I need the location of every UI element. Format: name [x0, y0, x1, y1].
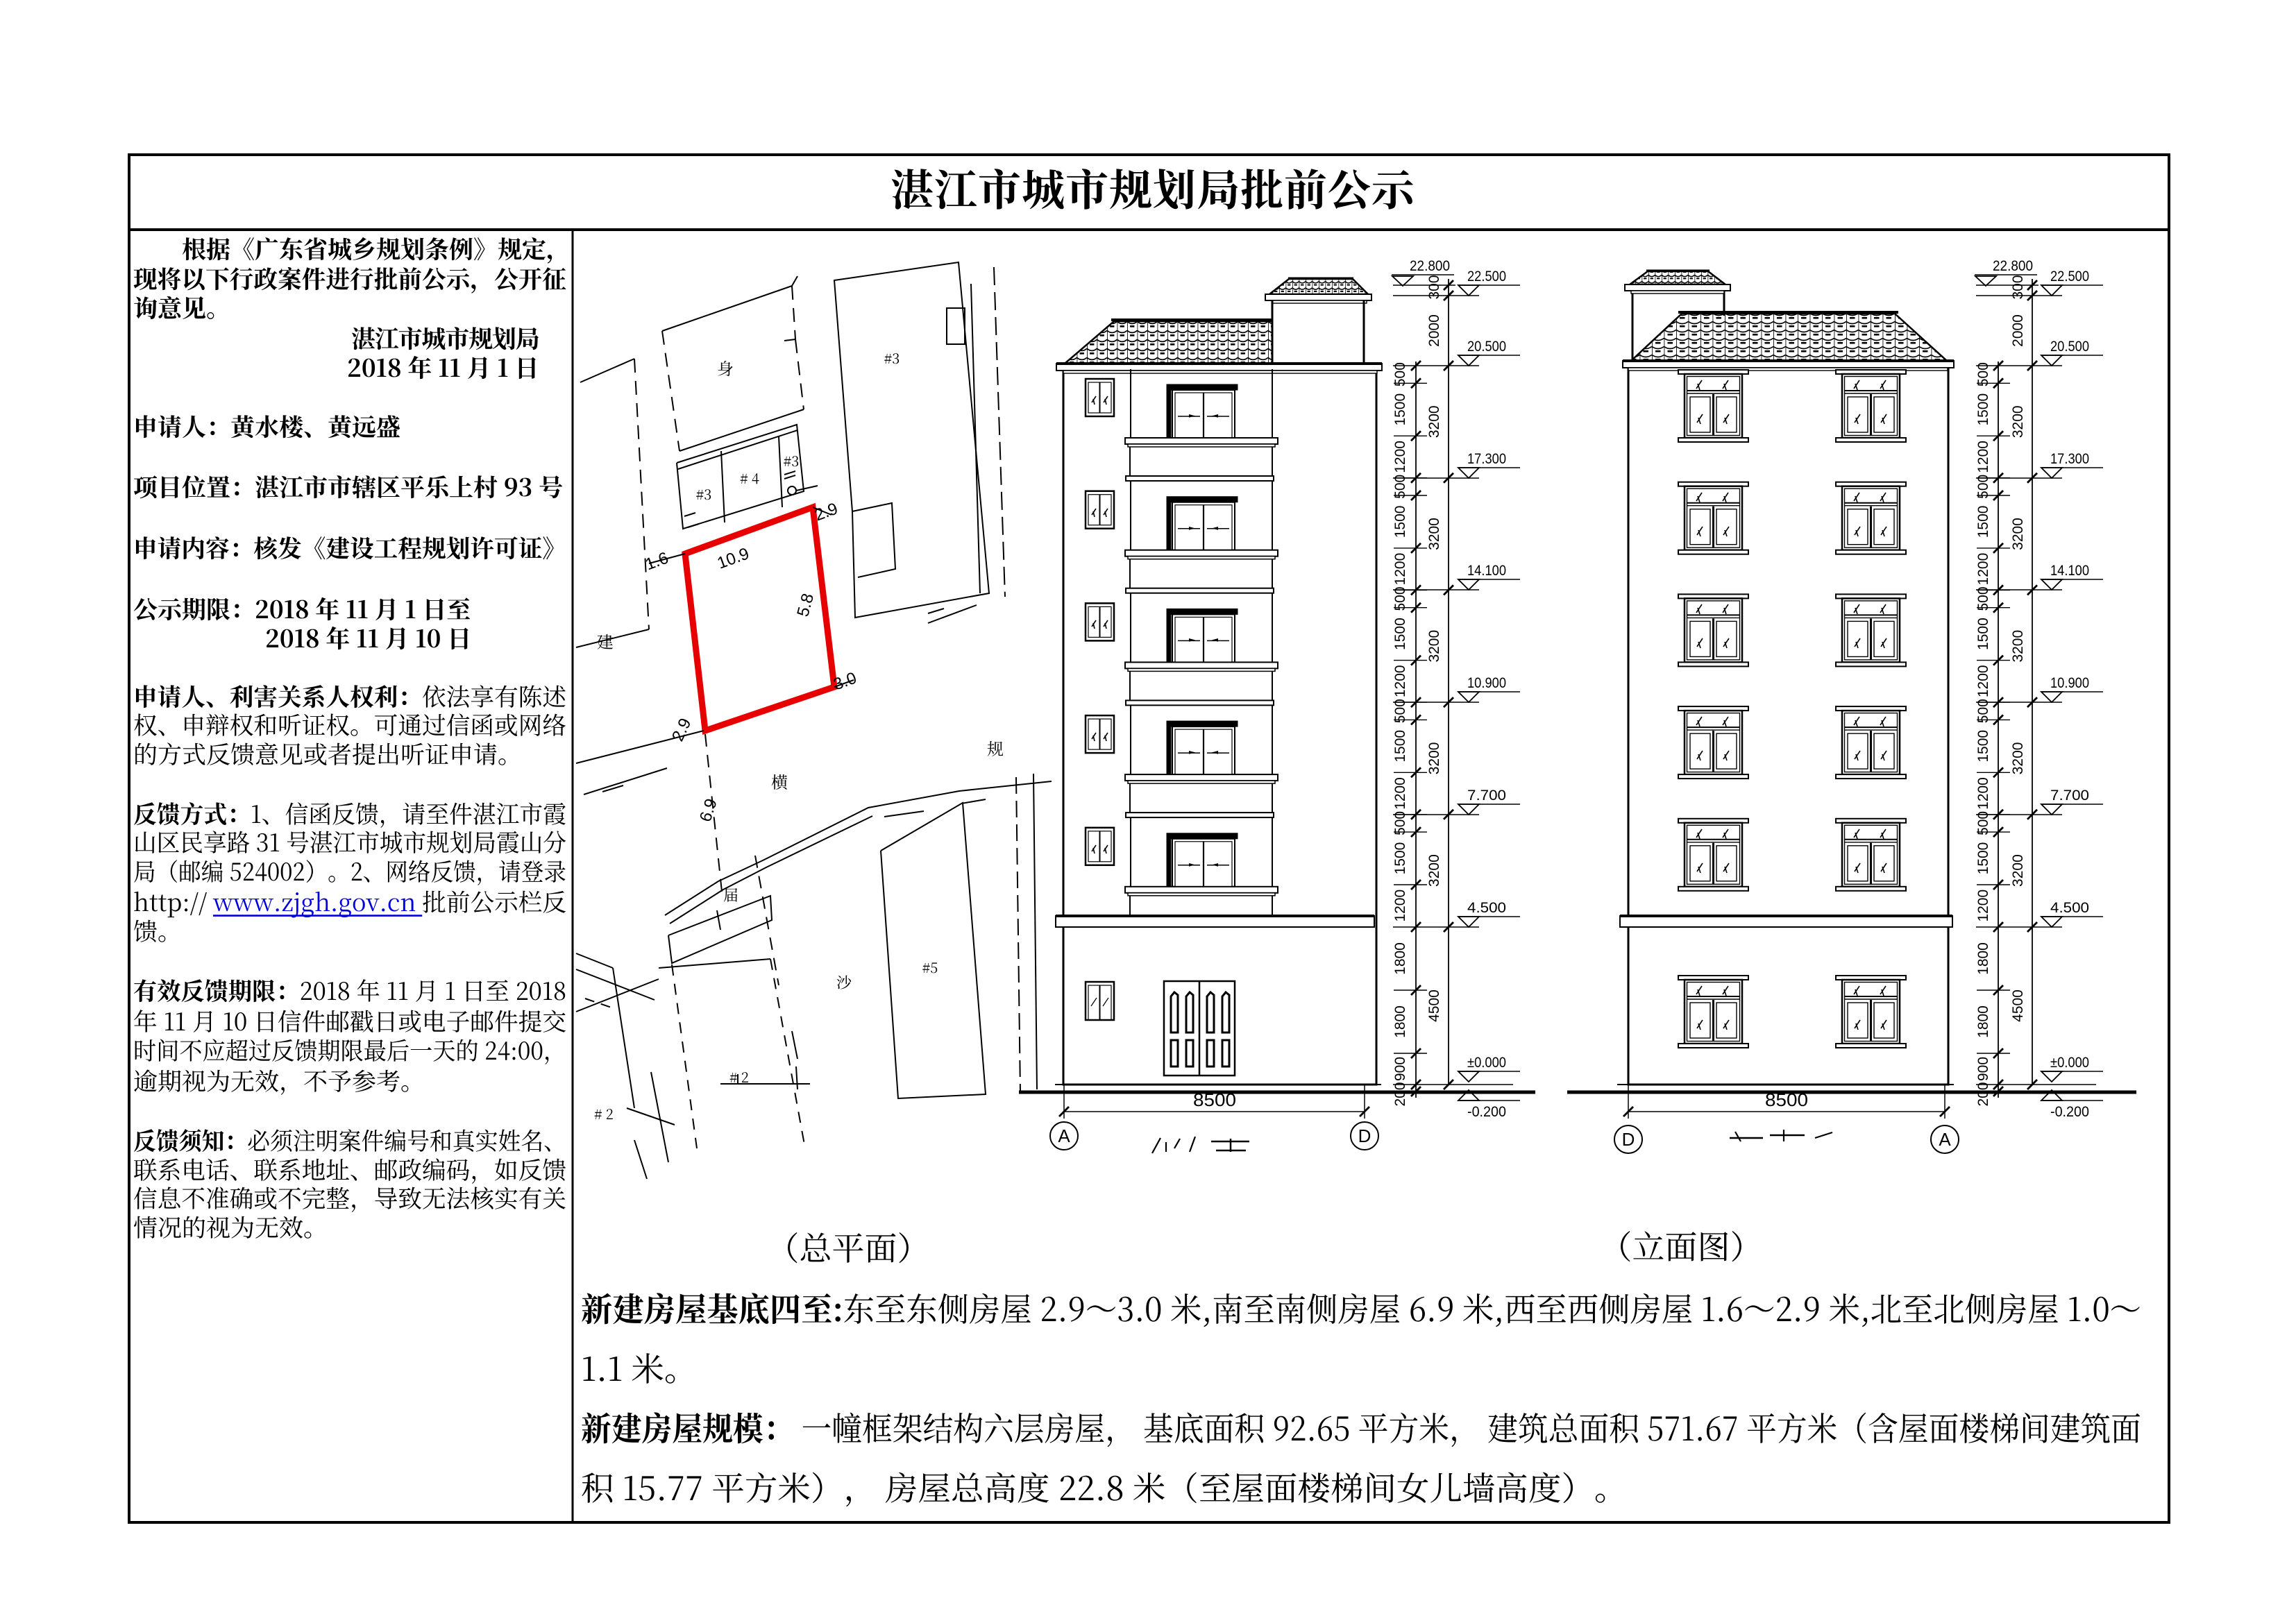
svg-text:3200: 3200 [2010, 854, 2026, 887]
svg-text:1800: 1800 [1392, 1005, 1408, 1038]
svg-text:7.700: 7.700 [2050, 788, 2089, 804]
svg-text:3200: 3200 [2010, 405, 2026, 438]
svg-text:500: 500 [1392, 362, 1408, 386]
svg-text:1200: 1200 [1392, 777, 1408, 810]
svg-text:500: 500 [1975, 699, 1991, 723]
svg-text:1200: 1200 [1392, 665, 1408, 697]
svg-text:20.500: 20.500 [2050, 339, 2089, 355]
svg-text:200: 200 [1392, 1082, 1408, 1106]
svg-text:-0.200: -0.200 [1467, 1104, 1506, 1120]
svg-text:8500: 8500 [1765, 1089, 1808, 1110]
svg-text:7.700: 7.700 [1467, 788, 1506, 804]
svg-text:500: 500 [1392, 699, 1408, 723]
svg-text:17.300: 17.300 [2050, 451, 2089, 467]
svg-text:1500: 1500 [1975, 506, 1991, 538]
svg-text:1200: 1200 [1975, 890, 1991, 922]
svg-text:500: 500 [1975, 362, 1991, 386]
svg-text:1500: 1500 [1392, 618, 1408, 650]
svg-text:4500: 4500 [1426, 989, 1442, 1022]
svg-text:4500: 4500 [2010, 989, 2026, 1022]
svg-text:300: 300 [2010, 275, 2026, 299]
svg-text:A: A [1058, 1125, 1070, 1146]
svg-text:1800: 1800 [1392, 942, 1408, 975]
svg-text:200: 200 [1975, 1082, 1991, 1106]
svg-text:1500: 1500 [1975, 730, 1991, 763]
svg-text:1500: 1500 [1392, 393, 1408, 426]
svg-text:1200: 1200 [1392, 441, 1408, 473]
svg-text:A: A [1939, 1129, 1951, 1150]
svg-text:22.500: 22.500 [2050, 269, 2089, 284]
svg-text:14.100: 14.100 [2050, 563, 2089, 579]
svg-text:3200: 3200 [1426, 854, 1442, 887]
svg-text:D: D [1358, 1125, 1371, 1146]
svg-text:500: 500 [1392, 475, 1408, 499]
svg-text:2000: 2000 [2010, 314, 2026, 347]
svg-text:500: 500 [1392, 811, 1408, 835]
svg-text:500: 500 [1392, 586, 1408, 611]
svg-text:1200: 1200 [1392, 890, 1408, 922]
svg-text:500: 500 [1975, 586, 1991, 611]
svg-text:20.500: 20.500 [1467, 339, 1506, 355]
svg-text:±0.000: ±0.000 [2050, 1055, 2089, 1071]
svg-text:1500: 1500 [1975, 842, 1991, 875]
svg-text:3200: 3200 [2010, 630, 2026, 663]
svg-text:2000: 2000 [1426, 314, 1442, 347]
svg-text:10.900: 10.900 [2050, 675, 2089, 691]
svg-text:14.100: 14.100 [1467, 563, 1506, 579]
svg-text:17.300: 17.300 [1467, 451, 1506, 467]
svg-text:22.800: 22.800 [1410, 258, 1450, 274]
svg-text:1200: 1200 [1975, 441, 1991, 473]
svg-text:1800: 1800 [1975, 942, 1991, 975]
svg-text:900: 900 [1975, 1057, 1991, 1081]
svg-text:±0.000: ±0.000 [1467, 1055, 1506, 1071]
svg-text:3200: 3200 [1426, 742, 1442, 775]
svg-text:3200: 3200 [1426, 630, 1442, 663]
svg-text:-0.200: -0.200 [2050, 1104, 2089, 1120]
svg-text:4.500: 4.500 [2050, 900, 2089, 916]
svg-text:500: 500 [1975, 475, 1991, 499]
svg-text:3200: 3200 [2010, 742, 2026, 775]
svg-text:1200: 1200 [1975, 553, 1991, 586]
svg-text:1500: 1500 [1392, 506, 1408, 538]
svg-text:1200: 1200 [1975, 777, 1991, 810]
svg-text:1500: 1500 [1975, 393, 1991, 426]
svg-text:10.900: 10.900 [1467, 675, 1506, 691]
svg-text:3200: 3200 [1426, 518, 1442, 550]
svg-text:500: 500 [1975, 811, 1991, 835]
svg-text:1200: 1200 [1392, 553, 1408, 586]
svg-text:300: 300 [1426, 275, 1442, 299]
svg-text:22.800: 22.800 [1993, 258, 2033, 274]
svg-text:4.500: 4.500 [1467, 900, 1506, 916]
svg-text:3200: 3200 [2010, 518, 2026, 550]
svg-text:D: D [1622, 1129, 1635, 1150]
svg-text:1800: 1800 [1975, 1005, 1991, 1038]
svg-text:22.500: 22.500 [1467, 269, 1506, 284]
svg-text:1200: 1200 [1975, 665, 1991, 697]
svg-text:3200: 3200 [1426, 405, 1442, 438]
svg-text:1500: 1500 [1392, 730, 1408, 763]
svg-text:8500: 8500 [1193, 1089, 1236, 1110]
svg-text:900: 900 [1392, 1057, 1408, 1081]
svg-text:1500: 1500 [1392, 842, 1408, 875]
svg-text:1500: 1500 [1975, 618, 1991, 650]
